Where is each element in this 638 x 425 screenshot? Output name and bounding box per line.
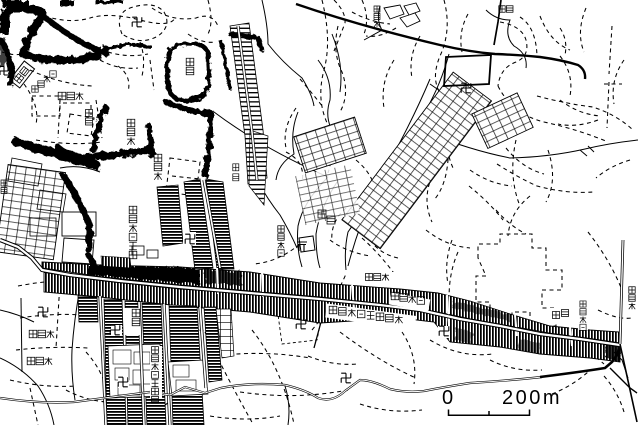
svg-text:200m: 200m [502,387,562,409]
svg-text:0: 0 [442,387,453,409]
